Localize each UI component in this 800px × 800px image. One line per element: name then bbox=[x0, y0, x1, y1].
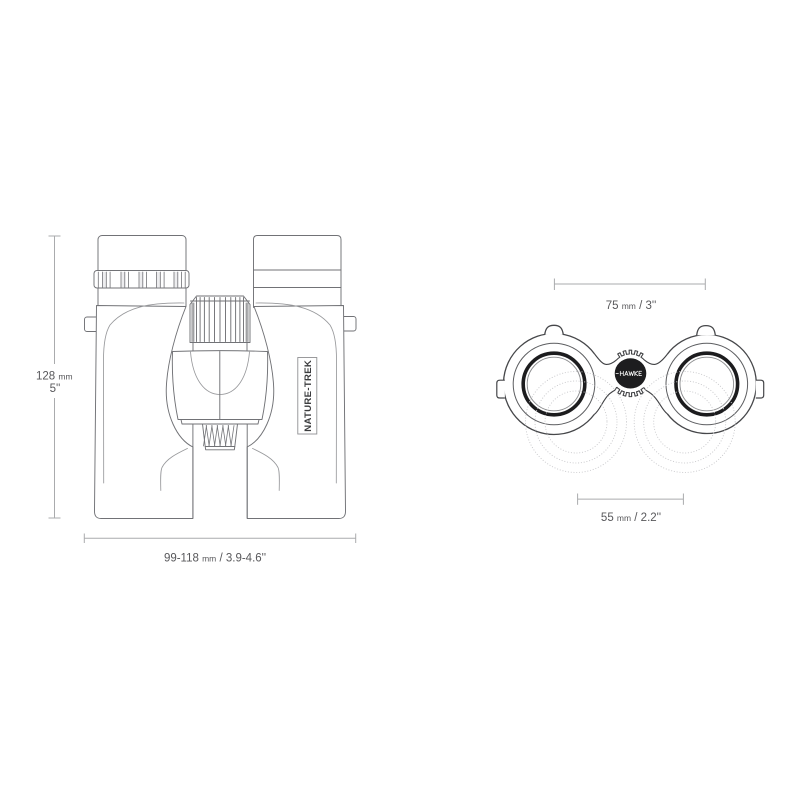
svg-text:NATURE-TREK: NATURE-TREK bbox=[303, 360, 314, 432]
svg-text:128 mm: 128 mm bbox=[36, 371, 73, 383]
svg-text:5'': 5'' bbox=[50, 383, 61, 395]
svg-text:55 mm / 2.2'': 55 mm / 2.2'' bbox=[601, 512, 661, 524]
svg-text:75 mm / 3'': 75 mm / 3'' bbox=[606, 300, 657, 312]
svg-text:99-118 mm / 3.9-4.6'': 99-118 mm / 3.9-4.6'' bbox=[164, 553, 266, 565]
